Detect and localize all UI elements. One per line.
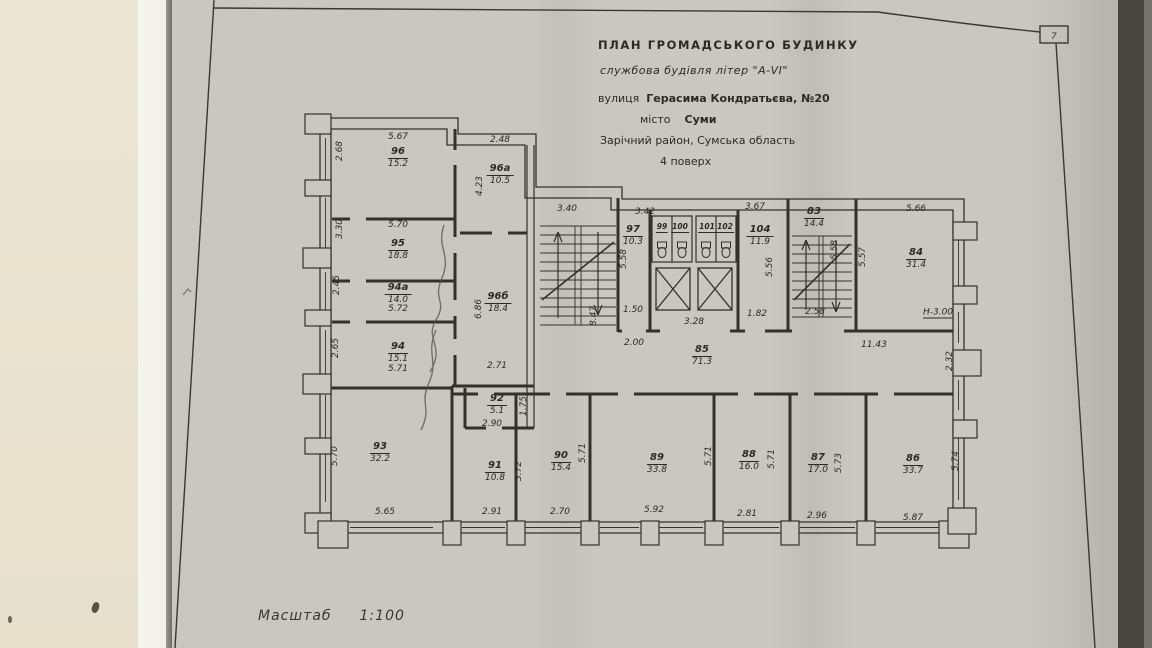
street-value: Герасима Кондратьєва, №20 — [646, 92, 829, 105]
room-83-label: 8314.4 — [804, 206, 824, 229]
dim-label: 1.50 — [623, 305, 643, 315]
room-number: 88 — [739, 449, 759, 462]
room-area: 11.9 — [747, 237, 774, 247]
dim-label: 1.75 — [519, 396, 529, 416]
dim-label: 5.58 — [830, 240, 840, 260]
dim-label: 2.91 — [482, 507, 502, 517]
dim-label: 3.42 — [635, 207, 655, 217]
room-number: 90 — [551, 450, 571, 463]
room-96-label: 9615.2 — [388, 146, 408, 169]
room-102-label: 102 — [716, 223, 734, 233]
room-93-label: 9332.2 — [370, 441, 390, 464]
room-90-label: 9015.4 — [551, 450, 571, 473]
room-94a-label: 94а14.0 — [385, 282, 412, 305]
dim-label: 5.58 — [619, 249, 629, 269]
dim-label: 3.72 — [514, 461, 524, 481]
room-number: 97 — [623, 224, 643, 237]
photo-right-edge-highlight — [1144, 0, 1152, 648]
room-area: 32.2 — [370, 454, 390, 464]
plan-subtitle: службова будівля літер "А-VI" — [600, 64, 788, 77]
dim-label: 5.56 — [765, 257, 775, 277]
dim-label: 4.23 — [475, 176, 485, 196]
room-101-label: 101 — [698, 223, 716, 233]
dim-label: 5.72 — [388, 304, 408, 314]
dim-label: 5.74 — [951, 451, 961, 471]
room-87-label: 8717.0 — [808, 452, 828, 475]
room-number: 91 — [485, 460, 505, 473]
dim-label: 3.40 — [557, 204, 577, 214]
dim-label: 3.30 — [335, 219, 345, 239]
dim-label: 5.65 — [375, 507, 395, 517]
dim-label: 3.28 — [684, 317, 704, 327]
dim-label: 6.86 — [474, 299, 484, 319]
room-area: 10.5 — [487, 176, 514, 186]
room-number: 96а — [487, 163, 514, 176]
room-area: 16.0 — [739, 462, 759, 472]
room-area: 14.4 — [804, 219, 824, 229]
room-number: 96б — [485, 291, 512, 304]
dim-label: 2.32 — [945, 351, 955, 371]
dim-label: 5.70 — [330, 446, 340, 466]
dim-label: 5.73 — [834, 453, 844, 473]
street-label: вулиця — [598, 92, 639, 105]
city-row: місто Суми — [640, 113, 717, 126]
plan-labels: ПЛАН ГРОМАДСЬКОГО БУДИНКУ службова будів… — [0, 0, 1152, 648]
room-area: 31.4 — [906, 260, 926, 270]
room-number: 94 — [388, 341, 408, 354]
room-number: 95 — [388, 238, 408, 251]
dim-label: 11.43 — [861, 340, 887, 350]
room-84-label: 8431.4 — [906, 247, 926, 270]
room-88-label: 8816.0 — [739, 449, 759, 472]
room-number: 93 — [370, 441, 390, 454]
dim-label: 2.45 — [332, 275, 342, 295]
room-number: 84 — [906, 247, 926, 260]
room-area: 18.4 — [485, 304, 512, 314]
photo-of-floor-plan: 7 — [0, 0, 1152, 648]
dim-label: 2.68 — [335, 141, 345, 161]
room-91-label: 9110.8 — [485, 460, 505, 483]
room-area: 33.7 — [903, 466, 923, 476]
room-area: 10.3 — [623, 237, 643, 247]
street-row: вулиця Герасима Кондратьєва, №20 — [598, 92, 830, 105]
room-92-label: 925.1 — [487, 393, 507, 416]
room-95-label: 9518.8 — [388, 238, 408, 261]
dim-label: 5.71 — [704, 446, 714, 466]
debris-speck — [8, 616, 12, 623]
room-100-label: 100 — [671, 223, 689, 233]
room-number: 100 — [671, 223, 689, 233]
scale-note: Масштаб1:100 — [258, 608, 405, 624]
dim-label: 5.71 — [388, 364, 408, 374]
dim-label: 2.48 — [490, 135, 510, 145]
room-area: 15.2 — [388, 159, 408, 169]
room-number: 96 — [388, 146, 408, 159]
room-97-label: 9710.3 — [623, 224, 643, 247]
room-number: 101 — [698, 223, 716, 233]
room-area: 15.4 — [551, 463, 571, 473]
dim-label: 2.71 — [487, 361, 507, 371]
dim-label: 5.70 — [388, 220, 408, 230]
district-row: Зарічний район, Сумська область — [600, 134, 795, 147]
corridor-85-label: 8571.3 — [692, 344, 712, 367]
dim-label: 2.58 — [805, 307, 825, 317]
dim-label: 8.47 — [589, 306, 599, 326]
room-number: 87 — [808, 452, 828, 465]
dim-label: 3.67 — [745, 202, 765, 212]
elevation-mark: Н-3.00 — [923, 308, 953, 319]
room-number: 104 — [747, 224, 774, 237]
room-94-label: 9415.1 — [388, 341, 408, 364]
room-number: 86 — [903, 453, 923, 466]
dim-label: 2.90 — [482, 419, 502, 429]
dim-label: 2.65 — [331, 338, 341, 358]
room-area: 18.8 — [388, 251, 408, 261]
room-99-label: 99 — [656, 223, 668, 233]
room-number: 102 — [716, 223, 734, 233]
room-104-label: 10411.9 — [747, 224, 774, 247]
room-area: 15.1 — [388, 354, 408, 364]
scale-value: 1:100 — [360, 608, 405, 624]
room-number: 83 — [804, 206, 824, 219]
dim-label: 2.96 — [807, 511, 827, 521]
room-96b-label: 96б18.4 — [485, 291, 512, 314]
dim-label: 5.71 — [578, 443, 588, 463]
room-number: 85 — [692, 344, 712, 357]
dim-label: 5.67 — [388, 132, 408, 142]
plan-title: ПЛАН ГРОМАДСЬКОГО БУДИНКУ — [598, 38, 859, 52]
floor-row: 4 поверх — [660, 155, 711, 168]
room-89-label: 8933.8 — [647, 452, 667, 475]
room-number: 99 — [656, 223, 668, 233]
dim-label: 2.00 — [624, 338, 644, 348]
dim-label: 5.66 — [906, 204, 926, 214]
room-86-label: 8633.7 — [903, 453, 923, 476]
scale-label: Масштаб — [258, 608, 332, 624]
dim-label: 5.87 — [903, 513, 923, 523]
dim-label: 5.92 — [644, 505, 664, 515]
room-96a-label: 96а10.5 — [487, 163, 514, 186]
city-label: місто — [640, 113, 671, 126]
dim-label: 5.57 — [858, 247, 868, 267]
dim-label: 5.71 — [767, 449, 777, 469]
room-area: 71.3 — [692, 357, 712, 367]
city-value: Суми — [685, 113, 717, 126]
room-area: 10.8 — [485, 473, 505, 483]
room-number: 92 — [487, 393, 507, 406]
room-area: 5.1 — [487, 406, 507, 416]
dim-label: 2.81 — [737, 509, 757, 519]
dim-label: 2.70 — [550, 507, 570, 517]
room-number: 94а — [385, 282, 412, 295]
room-area: 33.8 — [647, 465, 667, 475]
room-number: 89 — [647, 452, 667, 465]
room-area: 17.0 — [808, 465, 828, 475]
dim-label: 1.82 — [747, 309, 767, 319]
